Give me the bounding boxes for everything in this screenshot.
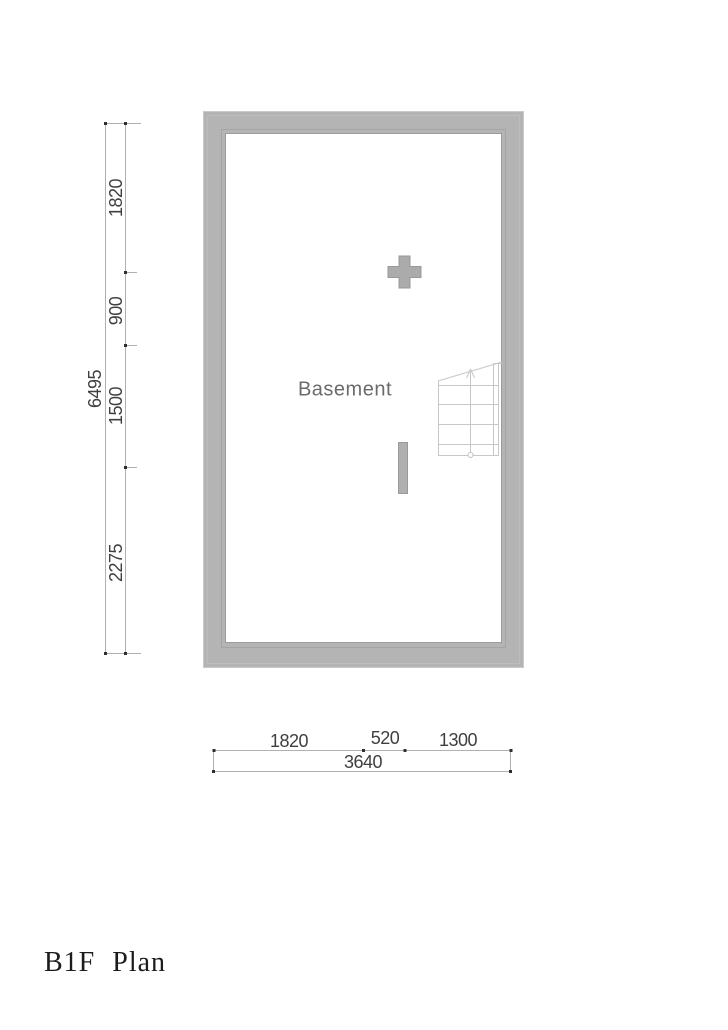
dim-label-bottom-total: 3640 [344,753,382,771]
page-title: B1F Plan [44,947,166,979]
dim-label-left-total: 6495 [86,370,104,408]
room-label-basement: Basement [298,379,392,402]
dim-label-bottom-seg-2: 520 [371,729,400,747]
dim-label-left-seg-2: 900 [107,297,125,326]
floor-plan-page: Basement 6495 1820 900 1500 2275 1820 52… [0,0,728,1030]
dim-label-bottom-seg-1: 1820 [270,732,308,750]
wall-stub [399,443,408,494]
floor-plan-drawing [0,0,728,1030]
dim-label-left-seg-1: 1820 [107,179,125,217]
dim-label-left-seg-3: 1500 [107,387,125,425]
dim-label-bottom-seg-3: 1300 [439,731,477,749]
dim-extension-left-ticks [125,273,137,468]
stair-start-marker [468,453,473,458]
dim-label-left-seg-4: 2275 [107,544,125,582]
